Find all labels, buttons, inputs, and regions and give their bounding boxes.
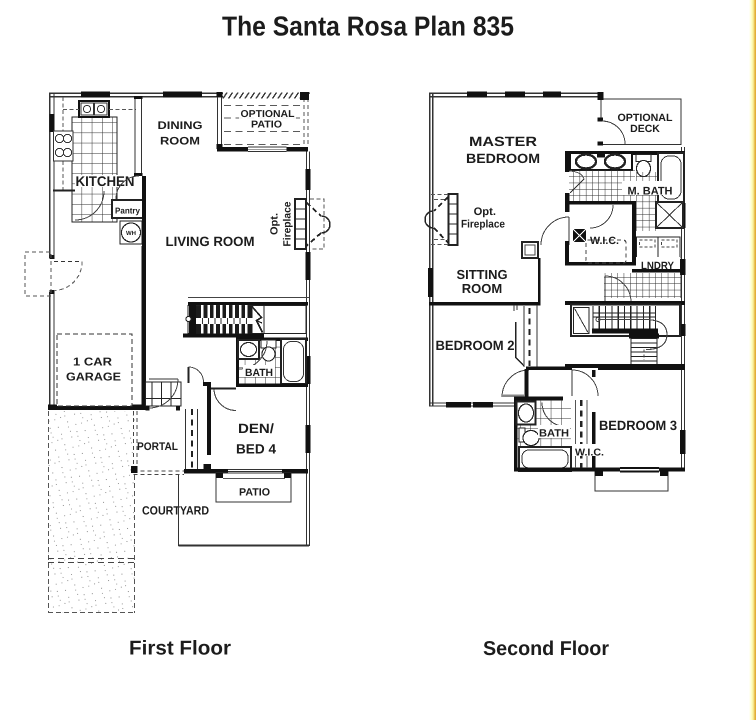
svg-text:PATIO: PATIO — [251, 120, 282, 131]
svg-text:Fireplace: Fireplace — [282, 201, 294, 246]
svg-text:GARAGE: GARAGE — [66, 372, 121, 384]
svg-text:Opt.: Opt. — [269, 213, 281, 235]
svg-text:WH: WH — [126, 230, 136, 237]
svg-text:The Santa Rosa Plan 835: The Santa Rosa Plan 835 — [222, 11, 514, 42]
svg-text:Pantry: Pantry — [115, 206, 140, 216]
svg-text:W.I.C.: W.I.C. — [575, 448, 604, 459]
svg-text:W.I.C.: W.I.C. — [590, 235, 619, 247]
svg-text:KITCHEN: KITCHEN — [76, 173, 135, 189]
svg-text:Opt.: Opt. — [474, 206, 496, 218]
svg-text:LIVING ROOM: LIVING ROOM — [166, 234, 255, 249]
svg-text:PATIO: PATIO — [239, 487, 270, 499]
svg-text:DECK: DECK — [630, 123, 660, 135]
svg-text:DEN/: DEN/ — [238, 421, 274, 436]
svg-text:DINING: DINING — [158, 120, 203, 132]
svg-text:BEDROOM 3: BEDROOM 3 — [599, 418, 677, 433]
svg-text:COURTYARD: COURTYARD — [142, 504, 209, 518]
svg-text:BED 4: BED 4 — [236, 442, 276, 457]
svg-text:ROOM: ROOM — [462, 281, 502, 296]
svg-text:SITTING: SITTING — [457, 267, 508, 282]
svg-text:OPTIONAL: OPTIONAL — [241, 109, 295, 120]
svg-text:BATH: BATH — [539, 428, 569, 440]
svg-text:BEDROOM: BEDROOM — [466, 151, 540, 166]
svg-text:BATH: BATH — [245, 367, 273, 379]
svg-text:Fireplace: Fireplace — [461, 219, 505, 231]
svg-text:First Floor: First Floor — [129, 638, 231, 660]
svg-text:MASTER: MASTER — [469, 134, 537, 149]
svg-text:BEDROOM 2: BEDROOM 2 — [436, 338, 515, 353]
svg-text:1 CAR: 1 CAR — [73, 357, 113, 369]
svg-text:PORTAL: PORTAL — [137, 441, 178, 453]
svg-text:M. BATH: M. BATH — [628, 186, 673, 198]
svg-text:ROOM: ROOM — [160, 136, 200, 148]
svg-text:Second Floor: Second Floor — [483, 638, 609, 660]
